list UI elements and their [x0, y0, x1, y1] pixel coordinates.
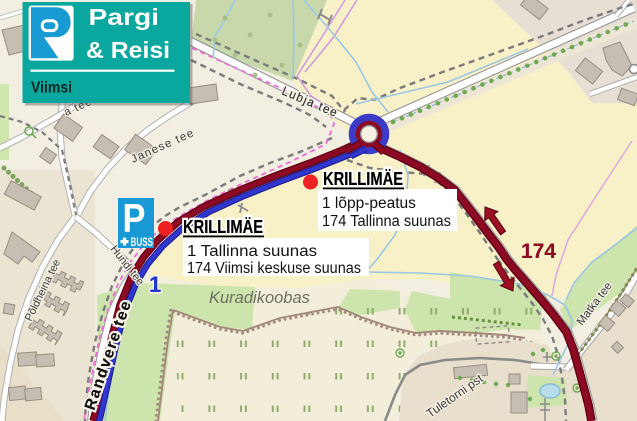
svg-text:1 Tallinna suunas: 1 Tallinna suunas — [187, 243, 317, 260]
svg-text:& Reisi: & Reisi — [86, 37, 170, 63]
svg-text:174 Tallinna suunas: 174 Tallinna suunas — [322, 213, 451, 230]
svg-text:1 lõpp-peatus: 1 lõpp-peatus — [322, 195, 416, 212]
svg-text:1: 1 — [149, 272, 161, 297]
svg-text:P: P — [123, 197, 146, 241]
svg-text:KRILLIMÄE: KRILLIMÄE — [183, 217, 263, 237]
svg-text:Pargi: Pargi — [89, 4, 160, 30]
svg-text:Viimsi: Viimsi — [31, 79, 72, 96]
svg-text:174: 174 — [521, 240, 556, 263]
svg-text:174 Viimsi keskuse suunas: 174 Viimsi keskuse suunas — [187, 260, 361, 277]
svg-text:KRILLIMÄE: KRILLIMÄE — [323, 169, 403, 189]
svg-text:BUSS: BUSS — [131, 237, 154, 249]
svg-text:Kuradikoobas: Kuradikoobas — [209, 289, 310, 307]
